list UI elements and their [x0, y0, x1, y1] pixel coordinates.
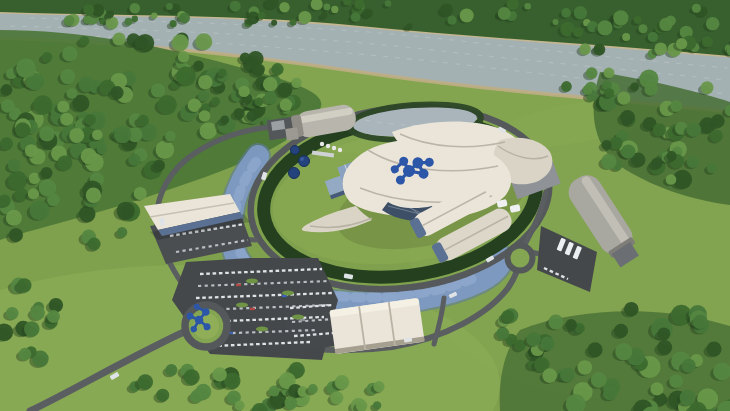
- tree: [158, 95, 177, 114]
- tree: [251, 64, 264, 77]
- tree: [373, 401, 381, 409]
- tree: [114, 126, 131, 143]
- tree: [624, 302, 639, 317]
- tree: [573, 28, 583, 38]
- tree: [151, 12, 157, 18]
- tree: [630, 82, 639, 91]
- tree: [28, 188, 39, 199]
- tree: [667, 151, 677, 161]
- tree: [8, 159, 21, 172]
- tree: [19, 348, 32, 361]
- tree: [321, 12, 328, 19]
- tree: [151, 83, 165, 97]
- tree: [42, 52, 53, 63]
- tree: [658, 328, 671, 341]
- tree: [578, 360, 593, 375]
- tree: [83, 15, 91, 23]
- tree: [669, 374, 683, 388]
- tree: [560, 367, 575, 382]
- tree: [687, 156, 699, 168]
- tree: [447, 16, 456, 25]
- gatehouse: [271, 120, 285, 131]
- tree: [193, 60, 203, 70]
- tree: [117, 227, 127, 237]
- tree: [561, 81, 572, 92]
- tree: [0, 137, 13, 150]
- tree: [561, 8, 571, 18]
- tree: [137, 115, 149, 127]
- tree: [588, 342, 603, 357]
- tree: [218, 69, 226, 77]
- tree: [597, 20, 612, 35]
- tree: [60, 69, 75, 84]
- tree: [176, 66, 196, 86]
- tree: [604, 67, 615, 78]
- tree: [6, 307, 19, 320]
- tree: [496, 327, 509, 340]
- plant-campus-scene: [0, 0, 730, 411]
- tree: [614, 324, 628, 338]
- tree: [527, 332, 541, 346]
- tree: [69, 128, 84, 143]
- tree: [617, 92, 630, 105]
- tree: [615, 343, 632, 360]
- tree: [579, 43, 591, 55]
- tree: [651, 158, 662, 169]
- tree: [524, 3, 531, 10]
- tree: [706, 17, 720, 31]
- tree: [170, 20, 177, 27]
- tree: [634, 16, 642, 24]
- tree: [653, 123, 666, 136]
- tree: [702, 36, 713, 47]
- tree: [79, 36, 89, 46]
- tree: [234, 108, 245, 119]
- tree: [230, 1, 241, 12]
- tree: [240, 53, 251, 64]
- tree: [166, 3, 173, 10]
- tree: [548, 315, 563, 330]
- tank-highlight: [300, 157, 304, 161]
- tree: [657, 340, 672, 355]
- tree: [280, 99, 292, 111]
- tree: [97, 144, 107, 154]
- tree: [586, 67, 598, 79]
- tree: [540, 337, 554, 351]
- tree: [199, 110, 211, 122]
- tree: [184, 369, 200, 385]
- tree: [85, 114, 96, 125]
- tree: [86, 188, 101, 203]
- tree: [613, 10, 628, 25]
- tree: [707, 163, 717, 173]
- tree: [331, 6, 338, 13]
- tree: [57, 155, 72, 170]
- tree: [138, 374, 154, 390]
- tree: [621, 144, 635, 158]
- tree: [113, 32, 126, 45]
- tree: [574, 6, 587, 19]
- tree: [25, 144, 38, 157]
- tree: [693, 315, 708, 330]
- entrance-roundabout: [185, 302, 227, 347]
- tree: [351, 12, 361, 22]
- tree: [603, 386, 617, 400]
- tree: [601, 154, 616, 169]
- tree: [213, 367, 227, 381]
- tree: [650, 382, 663, 395]
- tree: [60, 113, 73, 126]
- tree: [298, 11, 311, 24]
- tree: [92, 129, 103, 140]
- tree: [1, 84, 13, 96]
- tree: [128, 154, 140, 166]
- tree: [6, 210, 22, 226]
- tree: [62, 46, 77, 61]
- tree: [687, 122, 702, 137]
- tree: [195, 33, 212, 50]
- tree: [620, 110, 635, 125]
- tree: [132, 16, 138, 22]
- tree: [605, 88, 614, 97]
- hangar-annex: [285, 127, 299, 141]
- tree: [33, 95, 52, 114]
- tree: [701, 81, 714, 94]
- tree: [706, 341, 721, 356]
- tree: [83, 4, 94, 15]
- tree: [644, 82, 658, 96]
- tree: [67, 88, 78, 99]
- tree: [460, 9, 474, 23]
- tree: [211, 97, 220, 106]
- tree: [385, 0, 392, 7]
- tree: [179, 13, 190, 24]
- tree: [254, 97, 263, 106]
- tree: [264, 91, 277, 104]
- tree: [57, 101, 69, 113]
- tree: [178, 51, 189, 62]
- tree: [198, 75, 212, 89]
- tree: [610, 137, 623, 150]
- tree: [247, 110, 258, 121]
- tree: [654, 42, 667, 55]
- tree: [24, 321, 40, 337]
- tree: [16, 58, 36, 78]
- tree: [373, 381, 384, 392]
- tree: [235, 400, 245, 410]
- tree: [88, 238, 101, 251]
- east-roundabout: [508, 246, 533, 271]
- tree: [17, 278, 31, 292]
- tree: [648, 32, 658, 42]
- tree: [15, 122, 30, 137]
- tree: [79, 77, 95, 93]
- tree: [198, 90, 209, 101]
- tree: [710, 130, 723, 143]
- tree: [8, 171, 27, 190]
- tree: [165, 131, 176, 142]
- tree: [271, 63, 283, 75]
- tree: [124, 18, 132, 26]
- tree: [81, 148, 97, 164]
- tree: [583, 85, 593, 95]
- tree: [64, 15, 75, 26]
- tree: [134, 187, 147, 200]
- tree: [498, 7, 511, 20]
- tree: [199, 123, 216, 140]
- tree: [565, 319, 577, 331]
- tree: [591, 372, 607, 388]
- tree: [135, 36, 148, 49]
- tree: [440, 3, 453, 16]
- tree: [692, 4, 701, 13]
- tree: [363, 8, 372, 17]
- tree: [220, 116, 229, 125]
- tree: [639, 24, 648, 33]
- tree: [47, 310, 60, 323]
- tree: [190, 390, 203, 403]
- aerial-rendering: [0, 0, 730, 411]
- tree: [1, 99, 15, 113]
- tree: [153, 160, 165, 172]
- tree: [172, 34, 189, 51]
- tree: [39, 126, 54, 141]
- tree: [594, 44, 606, 56]
- tree: [258, 12, 266, 20]
- tree: [602, 140, 612, 150]
- tree: [324, 4, 331, 11]
- tree: [279, 2, 289, 12]
- tree: [238, 86, 249, 97]
- tree: [30, 306, 45, 321]
- tree: [542, 368, 557, 383]
- tree: [263, 77, 278, 92]
- tree: [666, 174, 677, 185]
- tree: [271, 20, 277, 26]
- tree: [9, 228, 23, 242]
- tree: [622, 33, 630, 41]
- tree: [406, 23, 413, 30]
- tree: [111, 86, 124, 99]
- tree: [39, 179, 57, 197]
- tree: [308, 384, 318, 394]
- tree: [277, 82, 292, 97]
- tree: [330, 391, 343, 404]
- tree: [156, 140, 175, 159]
- tree: [291, 78, 301, 88]
- tree: [501, 310, 514, 323]
- tree: [165, 364, 177, 376]
- tree: [130, 3, 141, 14]
- tree: [335, 375, 350, 390]
- tree: [676, 38, 687, 49]
- tree: [117, 202, 135, 220]
- tree: [659, 18, 672, 31]
- tree: [553, 19, 559, 25]
- tree: [41, 167, 53, 179]
- tree: [156, 389, 169, 402]
- tree: [107, 11, 114, 18]
- tree: [682, 359, 696, 373]
- tree: [285, 397, 298, 410]
- tree: [49, 298, 63, 312]
- tree: [670, 100, 682, 112]
- tree: [30, 200, 50, 220]
